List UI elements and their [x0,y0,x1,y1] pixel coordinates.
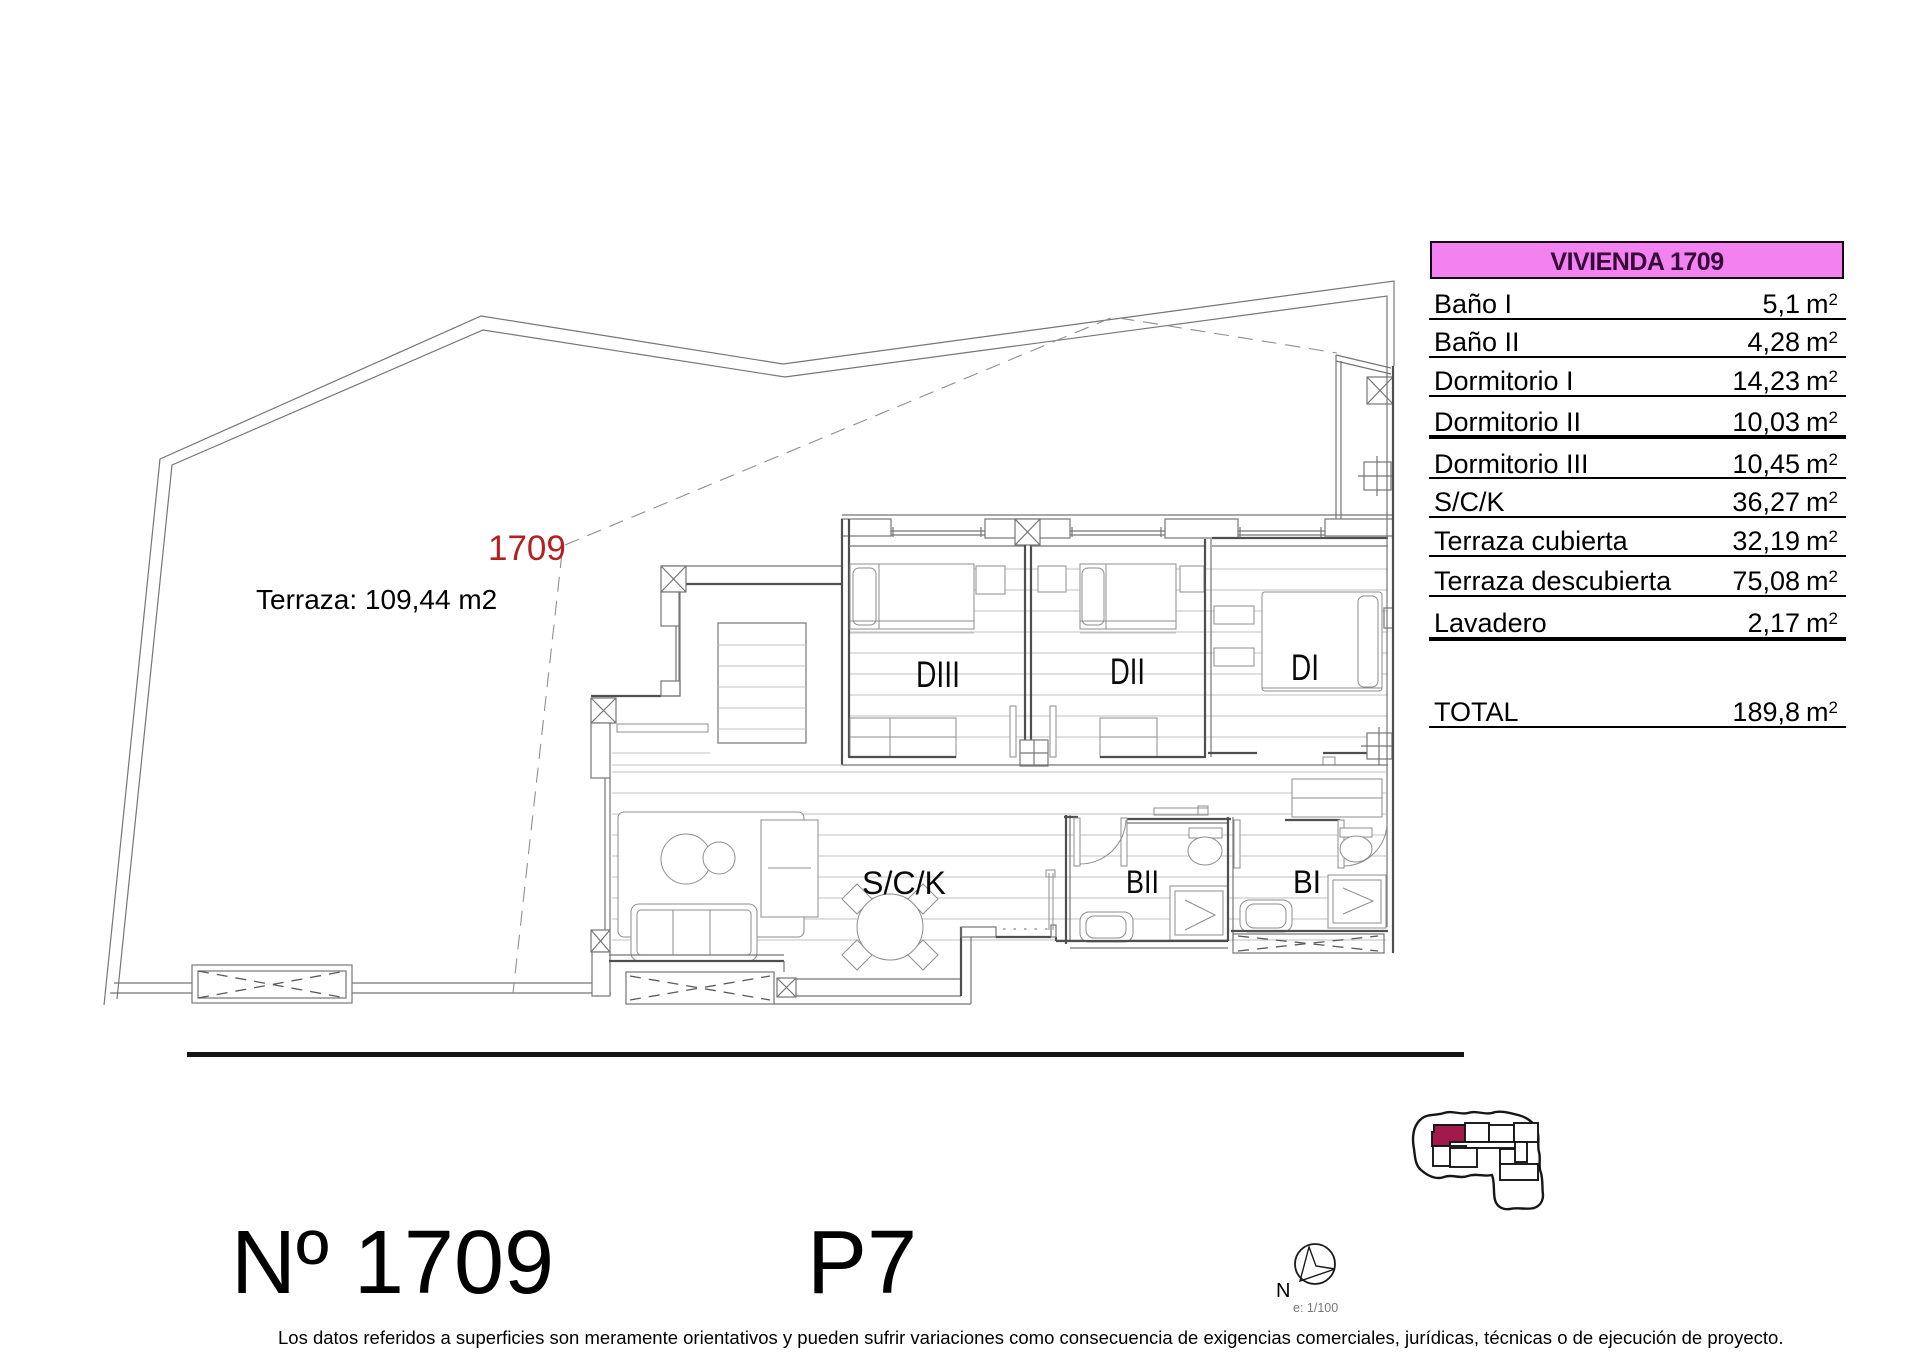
svg-text:DII: DII [1110,651,1145,692]
svg-text:BII: BII [1126,864,1159,900]
svg-text:S/C/K: S/C/K [862,865,946,901]
svg-text:DI: DI [1291,647,1319,688]
svg-text:BI: BI [1293,864,1321,900]
svg-text:DIII: DIII [916,654,960,695]
